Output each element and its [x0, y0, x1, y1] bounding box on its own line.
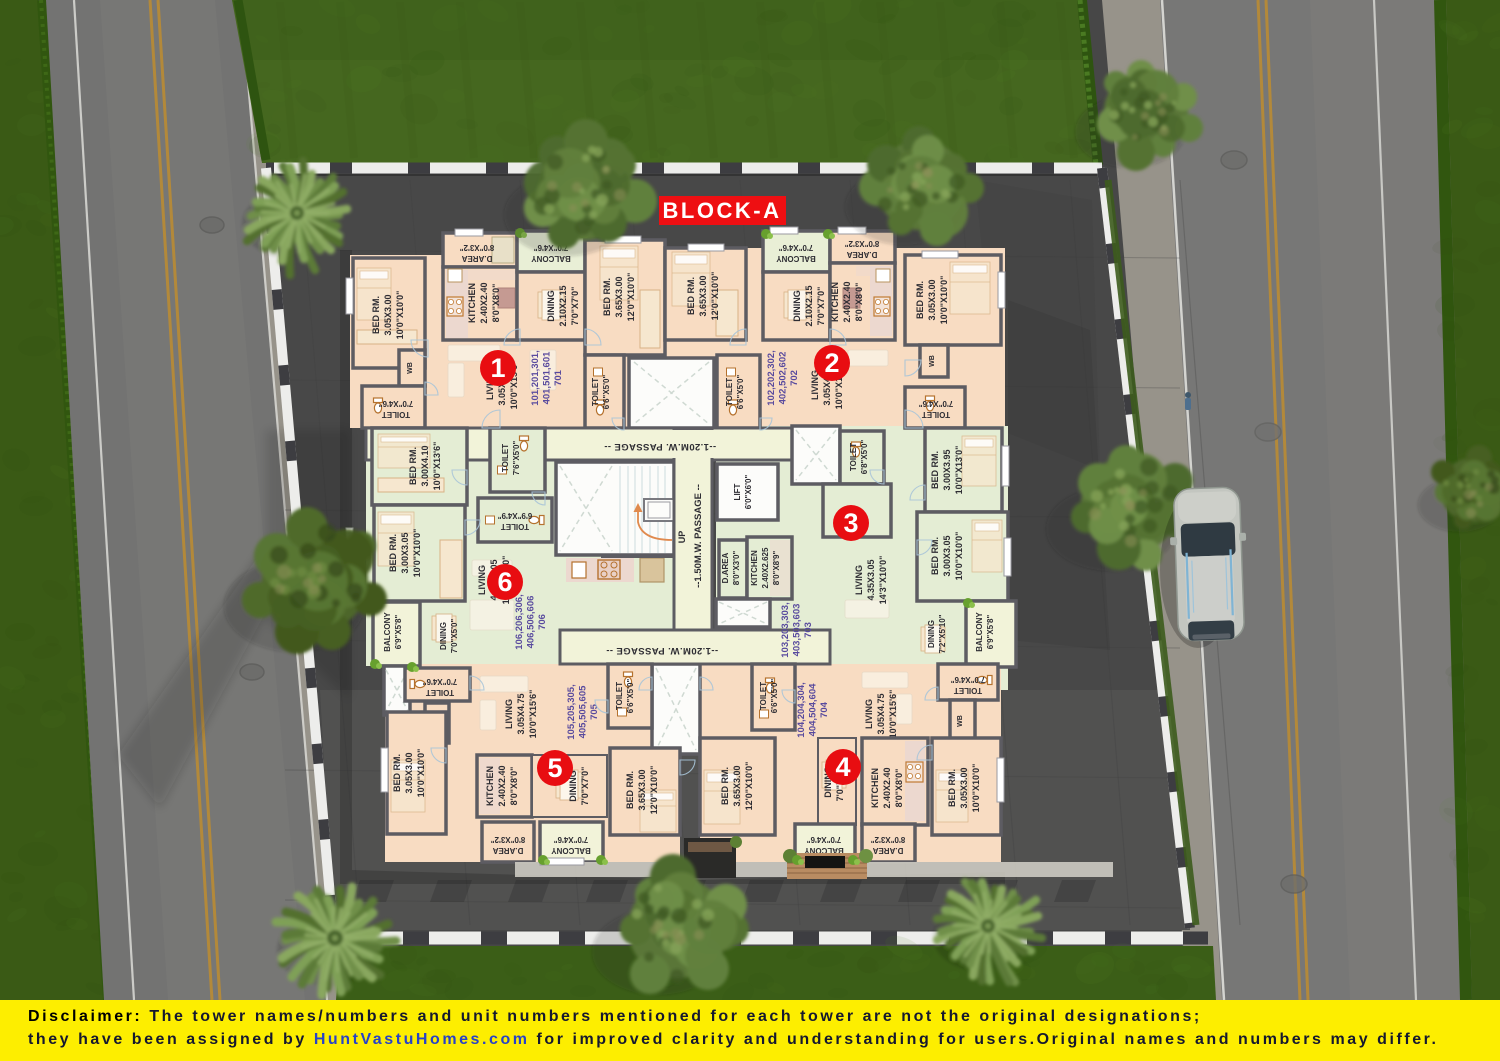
- svg-text:KITCHEN2.40X2.408'0"X8'0": KITCHEN2.40X2.408'0"X8'0": [467, 282, 501, 323]
- svg-text:BED RM.3.65X3.0012'0"X10'0": BED RM.3.65X3.0012'0"X10'0": [602, 273, 636, 322]
- svg-text:BED RM.3.65X3.0012'0"X10'0": BED RM.3.65X3.0012'0"X10'0": [625, 766, 659, 815]
- svg-text:--1.20M.W. PASSAGE --: --1.20M.W. PASSAGE --: [606, 645, 718, 656]
- svg-text:6: 6: [497, 567, 512, 597]
- svg-text:BLOCK-A: BLOCK-A: [663, 198, 782, 223]
- svg-text:BED RM.3.05X3.0010'0"X10'0": BED RM.3.05X3.0010'0"X10'0": [371, 291, 405, 340]
- svg-text:5: 5: [547, 753, 562, 783]
- svg-text:--1.20M.W. PASSAGE --: --1.20M.W. PASSAGE --: [604, 441, 716, 452]
- svg-text:DINING2.10X2.157'0"X7'0": DINING2.10X2.157'0"X7'0": [792, 285, 826, 326]
- svg-text:BED RM.3.65X3.0012'0"X10'0": BED RM.3.65X3.0012'0"X10'0": [686, 272, 720, 321]
- svg-text:DINING2.10X2.157'0"X7'0": DINING2.10X2.157'0"X7'0": [546, 285, 580, 326]
- svg-text:WB: WB: [407, 362, 414, 374]
- svg-text:WB: WB: [929, 355, 936, 367]
- svg-text:BED RM.3.05X3.0010'0"X10'0": BED RM.3.05X3.0010'0"X10'0": [915, 276, 949, 325]
- svg-text:BED RM.3.05X3.0010'0"X10'0": BED RM.3.05X3.0010'0"X10'0": [392, 749, 426, 798]
- svg-text:KITCHEN2.40X2.408'0"X8'0": KITCHEN2.40X2.408'0"X8'0": [870, 767, 904, 808]
- svg-text:3: 3: [843, 508, 858, 538]
- svg-text:4: 4: [835, 752, 850, 782]
- svg-text:BED RM.3.65X3.0012'0"X10'0": BED RM.3.65X3.0012'0"X10'0": [720, 762, 754, 811]
- svg-text:WB: WB: [957, 715, 964, 727]
- svg-text:KITCHEN2.40X2.408'0"X8'0": KITCHEN2.40X2.408'0"X8'0": [830, 281, 864, 322]
- svg-text:BED RM.3.05X3.0010'0"X10'0": BED RM.3.05X3.0010'0"X10'0": [947, 764, 981, 813]
- svg-text:UP: UP: [677, 531, 687, 544]
- svg-text:KITCHEN2.40X2.6258'0"X8'9": KITCHEN2.40X2.6258'0"X8'9": [750, 547, 781, 588]
- svg-text:BED RM.3.00X3.9510'0"X13'0": BED RM.3.00X3.9510'0"X13'0": [930, 446, 964, 495]
- svg-text:BED RM.3.00X4.1010'0"X13'6": BED RM.3.00X4.1010'0"X13'6": [408, 442, 442, 491]
- svg-text:KITCHEN2.40X2.408'0"X8'0": KITCHEN2.40X2.408'0"X8'0": [485, 765, 519, 806]
- svg-text:BED RM.3.00X3.0510'0"X10'0": BED RM.3.00X3.0510'0"X10'0": [930, 532, 964, 581]
- svg-text:1: 1: [490, 353, 505, 383]
- svg-text:BED RM.3.00X3.0510'0"X10'0": BED RM.3.00X3.0510'0"X10'0": [388, 529, 422, 578]
- svg-text:2: 2: [824, 348, 839, 378]
- svg-text:--1.50M.W. PASSAGE --: --1.50M.W. PASSAGE --: [693, 484, 704, 588]
